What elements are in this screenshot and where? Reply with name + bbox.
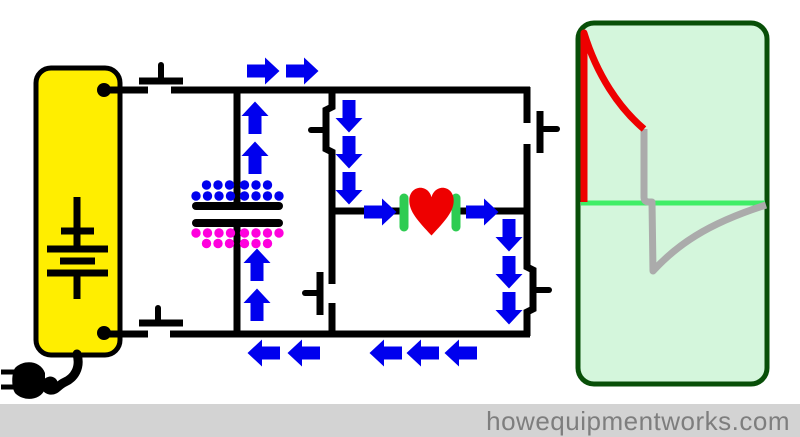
current-arrow-up: [244, 249, 271, 282]
negative-charge-dot: [203, 191, 212, 200]
defib-electrode-left: [400, 194, 409, 232]
current-arrow-down: [496, 256, 523, 289]
positive-charge-dot: [226, 228, 235, 237]
current-arrow-right: [466, 199, 499, 226]
current-arrow-left: [370, 340, 403, 367]
power-cord: [46, 354, 78, 390]
current-arrow-down: [496, 219, 523, 252]
current-arrow-up: [242, 102, 269, 135]
positive-charge-dot: [214, 228, 223, 237]
current-arrow-left: [248, 340, 281, 367]
negative-charge-dot: [274, 191, 283, 200]
positive-charge-dot: [240, 228, 249, 237]
positive-charge-dot: [191, 228, 200, 237]
negative-charge-dot: [251, 191, 260, 200]
plug-icon: [12, 362, 45, 399]
positive-charge-dot: [202, 239, 211, 248]
current-arrow-down: [336, 172, 363, 205]
negative-charge-dot: [251, 180, 260, 189]
charge-switch-bottom: [139, 308, 183, 323]
current-arrow-down: [336, 100, 363, 133]
negative-charge-dot: [213, 180, 222, 189]
negative-charge-dot: [263, 191, 272, 200]
current-arrow-up: [242, 142, 269, 175]
positive-charge-dot: [240, 239, 249, 248]
negative-charge-dot: [202, 180, 211, 189]
negative-charge-dot: [226, 191, 235, 200]
current-arrow-up: [244, 289, 271, 322]
wire: [326, 87, 332, 214]
positive-charge-dot: [213, 239, 222, 248]
heart-icon: [409, 188, 453, 236]
power-cord-and-plug: [1, 354, 78, 399]
bridge-switch-right-bottom: [527, 211, 549, 336]
negative-charge-dot: [240, 191, 249, 200]
defibrillator-diagram: howequipmentworks.com: [0, 0, 800, 437]
charge-switch-top: [139, 65, 183, 81]
positive-charge-dot: [203, 228, 212, 237]
watermark-text: howequipmentworks.com: [486, 408, 800, 434]
bridge-switch-left-bottom: [305, 211, 332, 334]
positive-charge-dot: [251, 228, 260, 237]
negative-charge-dot: [214, 191, 223, 200]
current-flow-arrows: [242, 58, 523, 367]
bridge-switch-right-top: [527, 87, 557, 214]
capacitor: [196, 206, 279, 223]
current-arrow-left: [288, 340, 321, 367]
footer-bar: howequipmentworks.com: [0, 404, 800, 437]
positive-charge-dot: [263, 228, 272, 237]
current-arrow-right: [247, 58, 280, 85]
battery: [36, 68, 120, 355]
current-arrow-right: [286, 58, 319, 85]
positive-charge-dot: [263, 239, 272, 248]
current-arrow-left: [445, 340, 478, 367]
negative-charge-dot: [225, 180, 234, 189]
bridge-switch-left-top: [311, 87, 332, 214]
current-arrow-left: [407, 340, 440, 367]
wire: [527, 211, 533, 336]
current-arrow-right: [364, 199, 397, 226]
waveform-panel: [578, 23, 767, 384]
positive-charge-dot: [274, 228, 283, 237]
negative-charge-dot: [191, 191, 200, 200]
positive-charge-dot: [225, 239, 234, 248]
current-arrow-down: [336, 136, 363, 169]
heart-load: [400, 188, 461, 236]
negative-charge-dot: [240, 180, 249, 189]
circuit-diagram-canvas: [0, 0, 800, 404]
negative-charge-dot: [263, 180, 272, 189]
current-arrow-down: [496, 292, 523, 325]
positive-charge-dot: [251, 239, 260, 248]
